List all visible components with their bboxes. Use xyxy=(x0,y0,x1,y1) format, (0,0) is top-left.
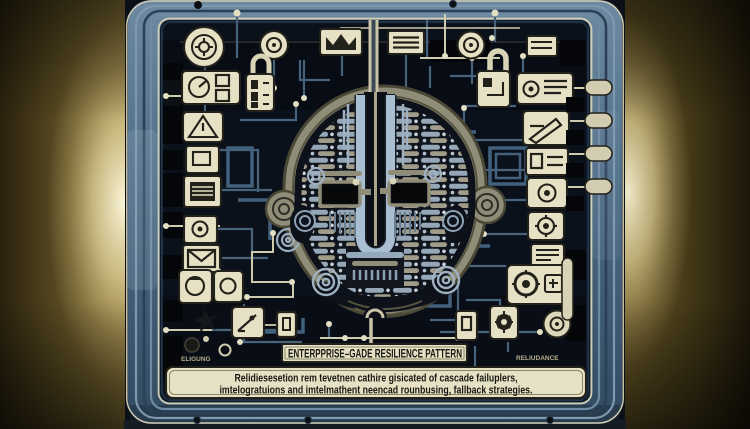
svg-text:imtelogratuions and imtelmathe: imtelogratuions and imtelmathent neencad… xyxy=(220,385,533,397)
svg-text:ELIGUNG: ELIGUNG xyxy=(181,356,211,363)
svg-text:ENTERPPRISE–GADE RESILIENCE PA: ENTERPPRISE–GADE RESILIENCE PATTERN xyxy=(288,347,462,361)
svg-text:Relidiesesetion rem tevetnen c: Relidiesesetion rem tevetnen cathire gis… xyxy=(235,373,518,385)
svg-text:RELIUDANCE: RELIUDANCE xyxy=(516,355,559,362)
